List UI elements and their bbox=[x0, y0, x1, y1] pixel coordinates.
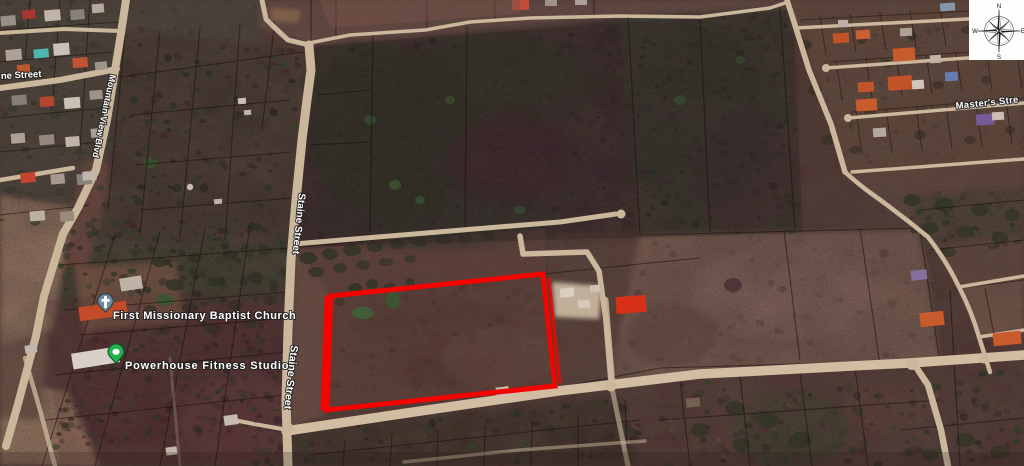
svg-text:N: N bbox=[997, 4, 1001, 10]
svg-text:S: S bbox=[997, 55, 1001, 61]
svg-text:Powerhouse Fitness Studio: Powerhouse Fitness Studio bbox=[125, 360, 289, 372]
svg-text:ne Street: ne Street bbox=[1, 69, 43, 82]
svg-text:W: W bbox=[972, 29, 978, 35]
svg-text:First Missionary Baptist Churc: First Missionary Baptist Church bbox=[113, 310, 296, 322]
